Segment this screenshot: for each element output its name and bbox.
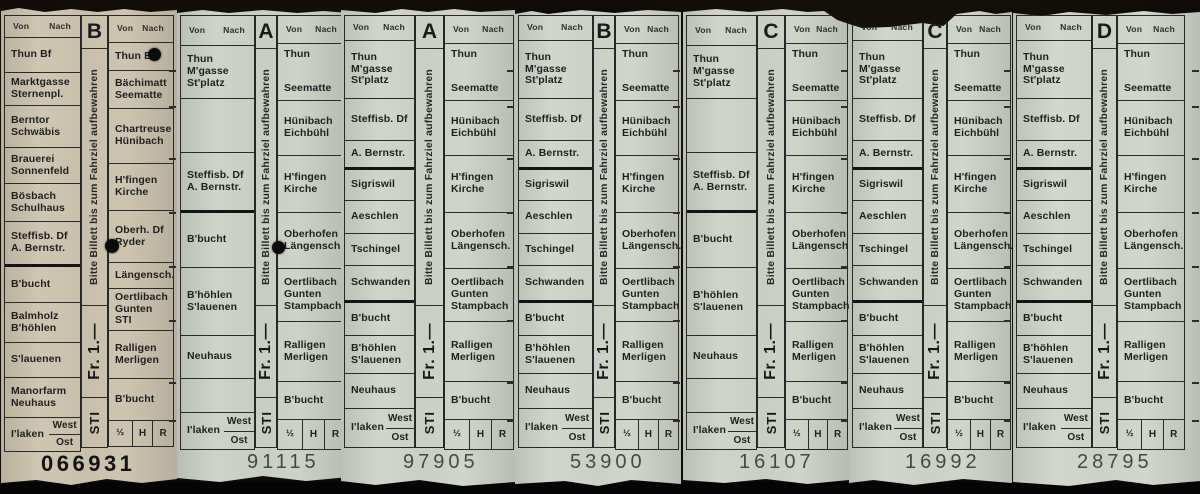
fare-class-cell: R: [827, 420, 847, 449]
station-cell: ThunSeematte: [1118, 44, 1184, 101]
station-cell: B'bucht: [1118, 382, 1184, 420]
station-cell: B'höhlen S'lauenen: [181, 268, 254, 336]
station-cell: Oertlibach Gunten Stampbach: [786, 269, 847, 322]
tickets-photo: VonNachThun BfMarktgasse Sternenpl.Bernt…: [0, 0, 1200, 494]
operator-label: STI: [87, 411, 102, 434]
station-cell: Steffisb. Df: [1017, 99, 1091, 141]
station-cell: Aeschlen: [345, 201, 414, 234]
station-cell: Thun Bf: [5, 38, 80, 73]
price-zone: Fr. 1.—: [924, 305, 946, 397]
price-label: Fr. 1.—: [1096, 323, 1114, 380]
ticket-letter: A: [416, 16, 443, 49]
ilaken-cell: I'lakenWestOst: [519, 409, 592, 447]
fare-class-row: ½HR: [786, 420, 847, 449]
operator-label: STI: [259, 411, 274, 434]
fare-class-cell: H: [970, 420, 990, 449]
operator-label: STI: [764, 411, 779, 434]
ticket-columns: VonNachThun M'gasse St'platzSteffisb. Df…: [518, 15, 679, 450]
fare-class-row: ½HR: [278, 420, 346, 449]
von-label: Von: [353, 23, 369, 33]
torn-edge-dash: [1192, 158, 1199, 160]
station-cell: B'bucht: [181, 213, 254, 268]
nach-label: Nach: [142, 24, 164, 34]
nach-label: Nach: [482, 25, 504, 35]
fare-class-cell: ½: [786, 420, 808, 449]
von-label: Von: [527, 23, 543, 33]
nach-label: Nach: [49, 22, 71, 32]
station-cell: Oertlibach Gunten Stampbach: [948, 269, 1010, 322]
torn-edge-dash: [1004, 70, 1011, 72]
von-label: Von: [286, 25, 302, 35]
torn-edge-dash: [507, 158, 514, 160]
station-cell: B'bucht: [345, 303, 414, 336]
fare-strip: CBitte Billett bis zum Fahrziel aufbewah…: [757, 15, 785, 448]
station-cell: Aeschlen: [853, 201, 922, 234]
nach-label: Nach: [383, 23, 405, 33]
station-cell: Thun M'gasse St'platz: [853, 41, 922, 99]
station-cell: A. Bernstr.: [1017, 141, 1091, 170]
column-header: VonNach: [948, 16, 1010, 44]
station-cell: A. Bernstr.: [345, 141, 414, 170]
torn-edge-dash: [507, 266, 514, 268]
station-cell: Thun M'gasse St'platz: [345, 41, 414, 99]
fare-class-cell: H: [808, 420, 828, 449]
ticket-letter: A: [256, 16, 276, 49]
fare-class-cell: H: [132, 421, 153, 446]
torn-edge-dash: [1192, 266, 1199, 268]
station-label: Thun: [451, 49, 477, 61]
west-label: West: [728, 413, 756, 432]
keep-notice-zone: Bitte Billett bis zum Fahrziel aufbewahr…: [924, 49, 946, 305]
station-cell: B'bucht: [109, 379, 173, 421]
ilaken-west-ost: WestOst: [728, 413, 756, 449]
station-cell: B'höhlen S'lauenen: [345, 336, 414, 374]
station-label: Thun: [622, 49, 648, 61]
fare-strip: ABitte Billett bis zum Fahrziel aufbewah…: [415, 15, 444, 448]
station-label: I'laken: [5, 418, 49, 451]
ticket-letter: C: [924, 16, 946, 49]
station-cell: Oertlibach Gunten Stampbach: [616, 269, 678, 322]
station-cell: Hünibach Eichbühl: [948, 101, 1010, 156]
keep-notice-zone: Bitte Billett bis zum Fahrziel aufbewahr…: [758, 49, 784, 305]
price-zone: Fr. 1.—: [416, 305, 443, 397]
station-cell: H'fingen Kirche: [109, 164, 173, 211]
station-column-right: VonNachThunSeematteHünibach EichbühlH'fi…: [444, 15, 514, 450]
station-cell: B'bucht: [278, 382, 346, 420]
ost-label: Ost: [49, 435, 80, 451]
ticket: VonNachThun BfMarktgasse Sternenpl.Bernt…: [1, 0, 177, 494]
station-column-left: VonNachThun M'gasse St'platzSteffisb. Df…: [344, 15, 415, 448]
station-cell: A. Bernstr.: [519, 141, 592, 170]
station-cell: Oberhofen Längensch.: [786, 213, 847, 269]
station-column-right: VonNachThunSeematteHünibach EichbühlH'fi…: [947, 15, 1011, 450]
von-label: Von: [624, 25, 640, 35]
fare-class-cell: ½: [278, 420, 302, 449]
station-cell: Sigriswil: [853, 170, 922, 201]
torn-edge-dash: [1192, 106, 1199, 108]
station-label: Seematte: [622, 83, 670, 95]
station-cell: Chartreuse Hünibach: [109, 109, 173, 164]
station-cell: ThunSeematte: [278, 44, 346, 101]
station-cell: Hünibach Eichbühl: [1118, 101, 1184, 156]
column-header: VonNach: [181, 16, 254, 46]
station-cell: Oertlibach Gunten STI: [109, 289, 173, 331]
ilaken-west-ost: WestOst: [224, 413, 254, 449]
station-cell: B'bucht: [948, 382, 1010, 420]
station-label: I'laken: [345, 409, 386, 447]
keep-notice-vertical: Bitte Billett bis zum Fahrziel aufbewahr…: [424, 69, 435, 285]
torn-edge-dash: [169, 70, 176, 72]
west-label: West: [386, 409, 414, 429]
torn-edge-dash: [841, 266, 848, 268]
empty-cell: [181, 99, 254, 153]
station-cell: Ralligen Merligen: [109, 331, 173, 379]
station-column-left: VonNachThun M'gasse St'platzSteffisb. Df…: [180, 15, 255, 450]
nach-label: Nach: [1060, 23, 1082, 33]
ticket: VonNachThun M'gasse St'platzSteffisb. Df…: [849, 0, 1012, 494]
torn-edge-dash: [1004, 158, 1011, 160]
station-cell: Steffisb. Df A. Bernstr.: [687, 153, 756, 213]
ilaken-west-ost: WestOst: [894, 409, 922, 447]
column-header: VonNach: [687, 16, 756, 46]
column-header: VonNach: [445, 16, 513, 44]
column-header: VonNach: [786, 16, 847, 44]
station-cell: Steffisb. Df: [853, 99, 922, 141]
keep-notice-vertical: Bitte Billett bis zum Fahrziel aufbewahr…: [89, 69, 100, 285]
column-header: VonNach: [616, 16, 678, 44]
operator-zone: STI: [924, 397, 946, 447]
station-cell: Thun M'gasse St'platz: [519, 41, 592, 99]
torn-edge-dash: [673, 266, 680, 268]
fare-class-cell: ½: [109, 421, 132, 446]
empty-cell: [687, 379, 756, 413]
price-zone: Fr. 1.—: [82, 305, 107, 397]
operator-label: STI: [597, 411, 612, 434]
station-cell: Tschingel: [345, 234, 414, 266]
station-label: Thun: [792, 49, 818, 61]
operator-label: STI: [422, 411, 437, 434]
operator-zone: STI: [82, 397, 107, 447]
station-cell: Sigriswil: [519, 170, 592, 201]
station-cell: Berntor Schwäbis: [5, 106, 80, 148]
nach-label: Nach: [1153, 25, 1175, 35]
station-label: Thun: [954, 49, 980, 61]
nach-label: Nach: [891, 23, 913, 33]
station-column-right: VonNachThunSeematteHünibach EichbühlH'fi…: [615, 15, 679, 450]
ost-label: Ost: [894, 429, 922, 448]
fare-class-cell: R: [1163, 420, 1184, 449]
von-label: Von: [117, 24, 133, 34]
torn-edge-dash: [841, 70, 848, 72]
torn-edge-dash: [673, 320, 680, 322]
keep-notice-zone: Bitte Billett bis zum Fahrziel aufbewahr…: [416, 49, 443, 305]
torn-edge-dash: [1192, 212, 1199, 214]
torn-edge-dash: [673, 382, 680, 384]
torn-edge-dash: [841, 212, 848, 214]
torn-edge-dash: [169, 212, 176, 214]
station-cell: Thun Bf: [109, 43, 173, 71]
ticket-columns: VonNachThun M'gasse St'platzSteffisb. Df…: [686, 15, 848, 450]
fare-class-cell: ½: [948, 420, 970, 449]
nach-label: Nach: [979, 25, 1001, 35]
ilaken-cell: I'lakenWestOst: [687, 413, 756, 449]
station-cell: Neuhaus: [687, 336, 756, 379]
station-label: Thun: [1124, 49, 1150, 61]
punch-hole: [148, 48, 161, 61]
serial-number: 97905: [403, 451, 479, 474]
ticket-columns: VonNachThun M'gasse St'platzSteffisb. Df…: [344, 15, 514, 450]
station-cell: Thun M'gasse St'platz: [181, 46, 254, 99]
torn-edge-dash: [841, 320, 848, 322]
station-cell: B'bucht: [445, 382, 513, 420]
ticket-columns: VonNachThun M'gasse St'platzSteffisb. Df…: [1016, 15, 1185, 450]
station-cell: A. Bernstr.: [853, 141, 922, 170]
ilaken-cell: I'lakenWestOst: [853, 409, 922, 447]
torn-edge-dash: [841, 382, 848, 384]
fare-class-row: ½HR: [445, 420, 513, 449]
fare-strip: ABitte Billett bis zum Fahrziel aufbewah…: [255, 15, 277, 448]
keep-notice-zone: Bitte Billett bis zum Fahrziel aufbewahr…: [594, 49, 614, 305]
station-cell: ThunSeematte: [948, 44, 1010, 101]
ticket-letter: B: [594, 16, 614, 49]
station-cell: B'bucht: [519, 303, 592, 336]
station-cell: B'bucht: [687, 213, 756, 268]
fare-class-cell: H: [302, 420, 324, 449]
fare-class-cell: R: [658, 420, 678, 449]
operator-zone: STI: [416, 397, 443, 447]
fare-class-cell: H: [638, 420, 658, 449]
station-cell: Aeschlen: [1017, 201, 1091, 234]
station-cell: Tschingel: [853, 234, 922, 266]
west-label: West: [224, 413, 254, 432]
price-zone: Fr. 1.—: [758, 305, 784, 397]
ilaken-cell: I'lakenWestOst: [1017, 409, 1091, 447]
torn-edge-dash: [507, 106, 514, 108]
station-cell: Thun M'gasse St'platz: [687, 46, 756, 99]
station-cell: Neuhaus: [1017, 374, 1091, 409]
station-cell: Brauerei Sonnenfeld: [5, 148, 80, 184]
torn-edge-dash: [169, 158, 176, 160]
station-cell: Ralligen Merligen: [445, 322, 513, 382]
von-label: Von: [189, 26, 205, 36]
station-cell: ThunSeematte: [786, 44, 847, 101]
price-label: Fr. 1.—: [762, 323, 780, 380]
station-cell: Längensch.: [109, 263, 173, 289]
ost-label: Ost: [386, 429, 414, 448]
station-cell: B'höhlen S'lauenen: [1017, 336, 1091, 374]
station-cell: B'höhlen S'lauenen: [853, 336, 922, 374]
station-cell: Hünibach Eichbühl: [616, 101, 678, 156]
torn-edge-dash: [1192, 420, 1199, 422]
station-cell: Oberhofen Längensch.: [948, 213, 1010, 269]
torn-edge-dash: [507, 420, 514, 422]
station-cell: Bächimatt Seematte: [109, 71, 173, 109]
price-label: Fr. 1.—: [421, 323, 439, 380]
nach-label: Nach: [816, 25, 838, 35]
torn-edge-dash: [507, 320, 514, 322]
torn-edge-dash: [673, 420, 680, 422]
torn-edge-dash: [1004, 420, 1011, 422]
station-cell: Oberh. Df Ryder: [109, 211, 173, 263]
nach-label: Nach: [647, 25, 669, 35]
fare-class-cell: H: [1141, 420, 1162, 449]
torn-edge-dash: [169, 420, 176, 422]
ilaken-cell: I'lakenWestOst: [345, 409, 414, 447]
station-cell: Oberhofen Längensch.: [445, 213, 513, 269]
fare-class-cell: R: [152, 421, 173, 446]
station-cell: Neuhaus: [519, 374, 592, 409]
operator-zone: STI: [256, 397, 276, 447]
nach-label: Nach: [561, 23, 583, 33]
price-zone: Fr. 1.—: [594, 305, 614, 397]
serial-number: 91115: [247, 451, 320, 474]
station-cell: Ralligen Merligen: [786, 322, 847, 382]
ilaken-west-ost: WestOst: [49, 418, 80, 451]
column-header: VonNach: [109, 16, 173, 43]
von-label: Von: [453, 25, 469, 35]
serial-number: 28795: [1077, 451, 1153, 474]
west-label: West: [894, 409, 922, 429]
station-label: Seematte: [451, 83, 499, 95]
operator-zone: STI: [758, 397, 784, 447]
keep-notice-vertical: Bitte Billett bis zum Fahrziel aufbewahr…: [599, 69, 610, 285]
station-column-right: VonNachThun BfBächimatt SeematteChartreu…: [108, 15, 174, 447]
serial-number: 16107: [739, 451, 815, 474]
ticket-columns: VonNachThun M'gasse St'platzSteffisb. Df…: [180, 15, 347, 450]
torn-edge-dash: [1004, 212, 1011, 214]
station-label: I'laken: [853, 409, 894, 447]
torn-edge-dash: [1004, 266, 1011, 268]
fare-strip: DBitte Billett bis zum Fahrziel aufbewah…: [1092, 15, 1117, 448]
ticket-columns: VonNachThun BfMarktgasse Sternenpl.Bernt…: [4, 15, 174, 452]
station-cell: Balmholz B'höhlen: [5, 303, 80, 343]
serial-number: 53900: [570, 451, 646, 474]
fare-strip: BBitte Billett bis zum Fahrziel aufbewah…: [593, 15, 615, 448]
station-cell: Ralligen Merligen: [616, 322, 678, 382]
torn-edge-dash: [841, 420, 848, 422]
ilaken-west-ost: WestOst: [562, 409, 592, 447]
ticket-columns: VonNachThun M'gasse St'platzSteffisb. Df…: [852, 15, 1011, 450]
torn-edge-dash: [507, 212, 514, 214]
torn-edge-dash: [507, 382, 514, 384]
torn-edge-dash: [169, 106, 176, 108]
west-label: West: [1061, 409, 1091, 429]
station-cell: H'fingen Kirche: [786, 156, 847, 213]
torn-edge-dash: [673, 158, 680, 160]
operator-zone: STI: [594, 397, 614, 447]
ost-label: Ost: [728, 432, 756, 450]
von-label: Von: [1126, 25, 1142, 35]
station-label: Seematte: [792, 83, 840, 95]
ticket-letter: B: [82, 16, 107, 49]
von-label: Von: [13, 22, 29, 32]
station-column-left: VonNachThun M'gasse St'platzSteffisb. Df…: [686, 15, 757, 450]
column-header: VonNach: [345, 16, 414, 41]
operator-label: STI: [1097, 411, 1112, 434]
station-cell: Oertlibach Gunten Stampbach: [278, 269, 346, 322]
station-cell: H'fingen Kirche: [616, 156, 678, 213]
station-column-left: VonNachThun M'gasse St'platzSteffisb. Df…: [1016, 15, 1092, 448]
ilaken-west-ost: WestOst: [1061, 409, 1091, 447]
station-cell: Hünibach Eichbühl: [786, 101, 847, 156]
station-cell: B'bucht: [5, 267, 80, 303]
station-cell: Marktgasse Sternenpl.: [5, 73, 80, 106]
station-cell: Steffisb. Df A. Bernstr.: [181, 153, 254, 213]
station-cell: Neuhaus: [853, 374, 922, 409]
station-cell: Manorfarm Neuhaus: [5, 378, 80, 418]
station-cell: Neuhaus: [345, 374, 414, 409]
station-cell: Hünibach Eichbühl: [445, 101, 513, 156]
column-header: VonNach: [5, 16, 80, 38]
station-cell: Schwanden: [345, 266, 414, 303]
column-header: VonNach: [853, 16, 922, 41]
serial-number: 16992: [905, 451, 981, 474]
keep-notice-vertical: Bitte Billett bis zum Fahrziel aufbewahr…: [1099, 69, 1110, 285]
station-cell: Aeschlen: [519, 201, 592, 234]
fare-class-cell: H: [469, 420, 491, 449]
station-label: Seematte: [1124, 83, 1172, 95]
ticket-letter: C: [758, 16, 784, 49]
station-cell: Ralligen Merligen: [1118, 322, 1184, 382]
punch-hole: [272, 241, 285, 254]
station-cell: H'fingen Kirche: [948, 156, 1010, 213]
ilaken-cell: I'lakenWestOst: [5, 418, 80, 451]
station-cell: Schwanden: [1017, 266, 1091, 303]
station-cell: B'bucht: [616, 382, 678, 420]
station-cell: Steffisb. Df A. Bernstr.: [5, 222, 80, 267]
von-label: Von: [1025, 23, 1041, 33]
west-label: West: [49, 418, 80, 435]
station-cell: Tschingel: [519, 234, 592, 266]
station-cell: Neuhaus: [181, 336, 254, 379]
torn-edge-dash: [1192, 320, 1199, 322]
torn-edge-dash: [507, 70, 514, 72]
fare-class-row: ½HR: [1118, 420, 1184, 449]
operator-label: STI: [928, 411, 943, 434]
von-label: Von: [695, 26, 711, 36]
ost-label: Ost: [1061, 429, 1091, 448]
fare-class-cell: ½: [1118, 420, 1141, 449]
nach-label: Nach: [725, 26, 747, 36]
keep-notice-zone: Bitte Billett bis zum Fahrziel aufbewahr…: [1093, 49, 1116, 305]
fare-class-row: ½HR: [616, 420, 678, 449]
torn-edge-dash: [169, 320, 176, 322]
fare-strip: BBitte Billett bis zum Fahrziel aufbewah…: [81, 15, 108, 448]
station-column-right: VonNachThunSeematteHünibach EichbühlH'fi…: [785, 15, 848, 450]
empty-cell: [181, 379, 254, 413]
fare-strip: CBitte Billett bis zum Fahrziel aufbewah…: [923, 15, 947, 448]
operator-zone: STI: [1093, 397, 1116, 447]
ticket: VonNachThun M'gasse St'platzSteffisb. Df…: [1013, 0, 1200, 494]
station-cell: B'bucht: [786, 382, 847, 420]
serial-number: 066931: [41, 451, 135, 477]
price-label: Fr. 1.—: [86, 323, 104, 380]
ost-label: Ost: [224, 432, 254, 450]
keep-notice-zone: Bitte Billett bis zum Fahrziel aufbewahr…: [256, 49, 276, 305]
station-column-right: VonNachThunSeematteHünibach EichbühlH'fi…: [1117, 15, 1185, 450]
station-cell: Thun M'gasse St'platz: [1017, 41, 1091, 99]
price-zone: Fr. 1.—: [1093, 305, 1116, 397]
column-header: VonNach: [1118, 16, 1184, 44]
fare-class-cell: R: [491, 420, 513, 449]
ticket: VonNachThun M'gasse St'platzSteffisb. Df…: [341, 0, 515, 494]
torn-edge-dash: [673, 212, 680, 214]
torn-edge-dash: [1192, 382, 1199, 384]
station-cell: B'höhlen S'lauenen: [519, 336, 592, 374]
station-cell: Hünibach Eichbühl: [278, 101, 346, 156]
station-cell: H'fingen Kirche: [278, 156, 346, 213]
nach-label: Nach: [223, 26, 245, 36]
